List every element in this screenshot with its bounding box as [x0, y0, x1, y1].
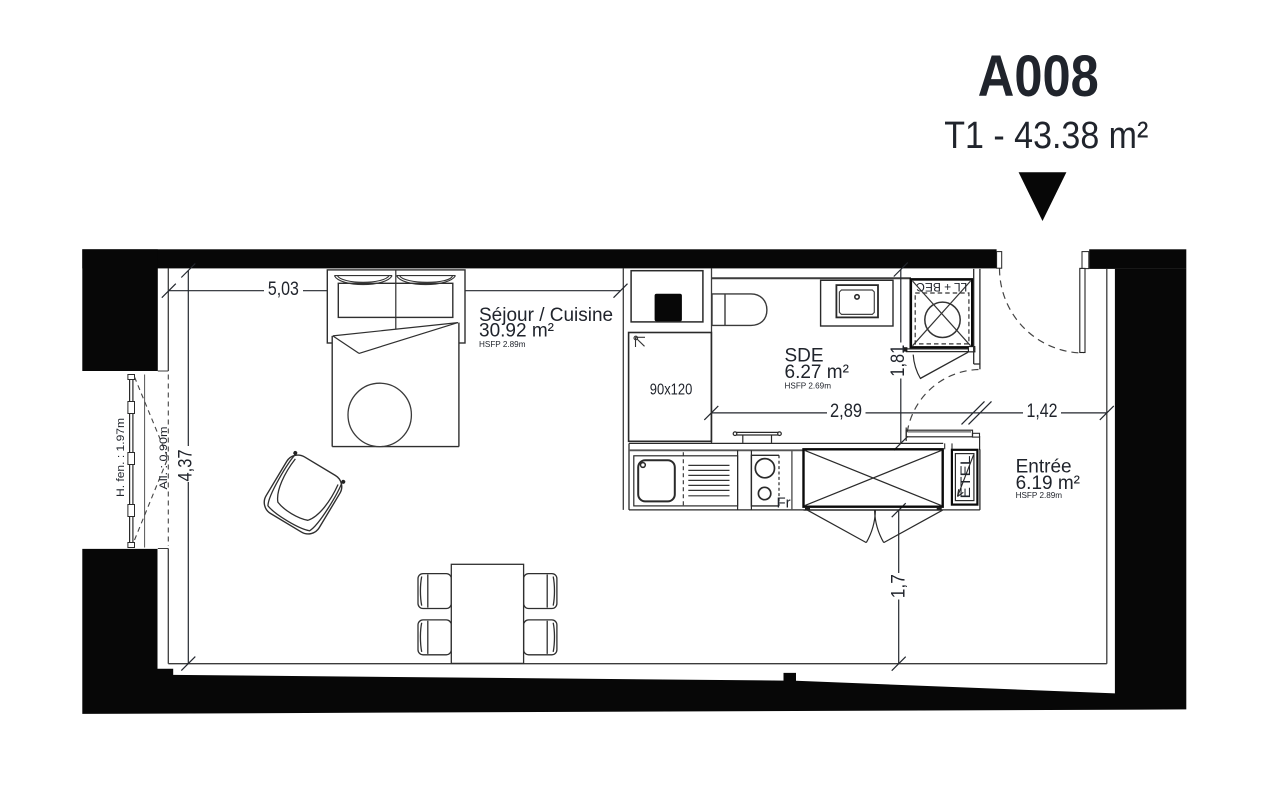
svg-text:Fr: Fr — [777, 495, 791, 512]
svg-text:2,89: 2,89 — [830, 400, 862, 422]
svg-text:HSFP 2.69m: HSFP 2.69m — [785, 380, 832, 390]
svg-text:ETEL: ETEL — [958, 455, 973, 499]
svg-text:HSFP 2.89m: HSFP 2.89m — [1016, 490, 1063, 500]
svg-text:HSFP 2.89m: HSFP 2.89m — [479, 339, 526, 349]
svg-text:1,81: 1,81 — [887, 345, 909, 377]
svg-text:T1 - 43.38 m²: T1 - 43.38 m² — [944, 115, 1148, 157]
svg-text:4,37: 4,37 — [174, 450, 196, 482]
svg-text:All. : 0.90m: All. : 0.90m — [158, 427, 170, 490]
svg-text:H. fen. : 1.97m: H. fen. : 1.97m — [115, 418, 127, 497]
svg-text:5,03: 5,03 — [268, 278, 299, 300]
svg-text:1,7: 1,7 — [888, 574, 910, 598]
svg-text:90x120: 90x120 — [650, 382, 693, 399]
svg-text:LL + BEC: LL + BEC — [916, 280, 967, 294]
svg-text:1,42: 1,42 — [1027, 400, 1058, 422]
svg-text:A008: A008 — [978, 44, 1099, 109]
